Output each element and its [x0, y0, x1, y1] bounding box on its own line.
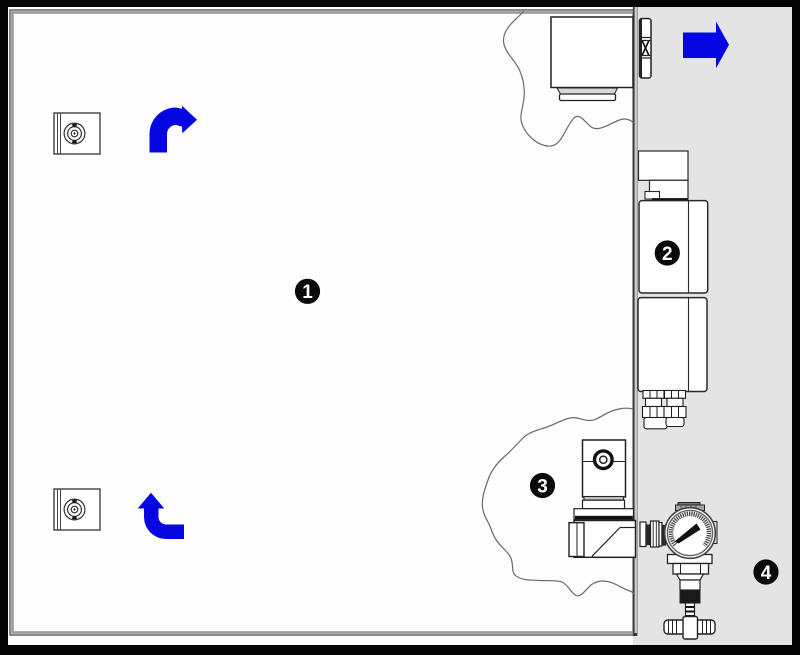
svg-text:1: 1	[302, 282, 313, 303]
svg-text:4: 4	[761, 563, 772, 584]
svg-text:3: 3	[537, 476, 548, 497]
svg-text:2: 2	[662, 244, 673, 265]
